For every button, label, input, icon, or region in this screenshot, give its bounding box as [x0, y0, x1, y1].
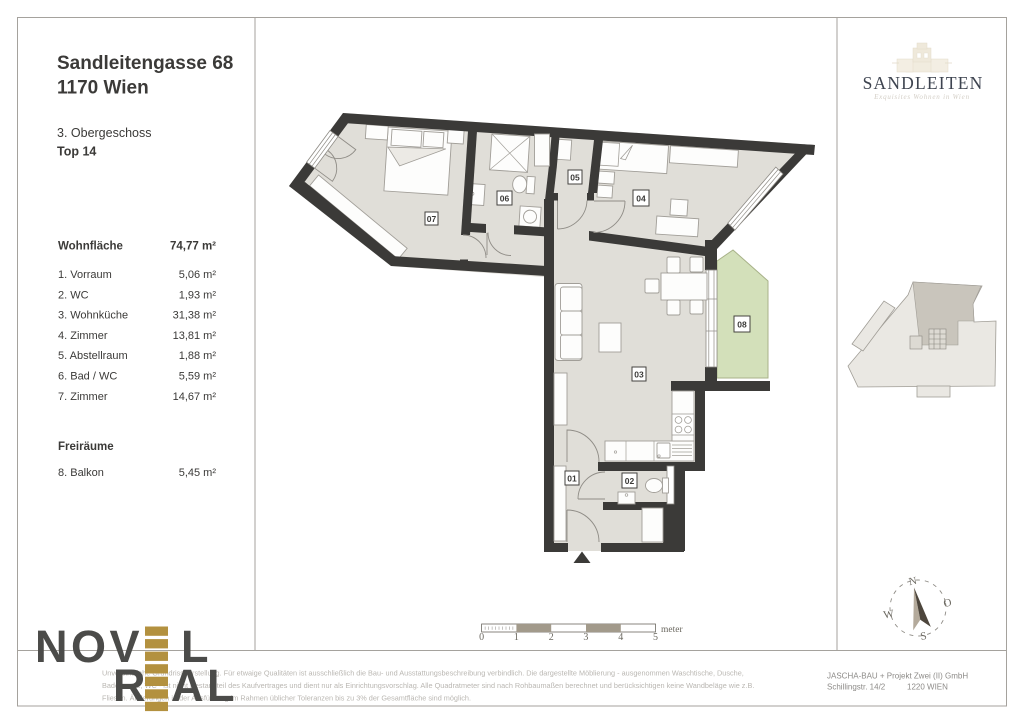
svg-text:08: 08: [737, 320, 747, 330]
svg-text:31,38 m²: 31,38 m²: [173, 310, 217, 322]
svg-text:Top 14: Top 14: [57, 145, 96, 159]
svg-text:2: 2: [549, 632, 554, 643]
svg-text:Sandleitengasse 68: Sandleitengasse 68: [57, 53, 233, 74]
svg-text:1,88 m²: 1,88 m²: [179, 350, 217, 362]
svg-text:meter: meter: [661, 625, 683, 635]
svg-text:Freiräume: Freiräume: [58, 441, 114, 453]
svg-text:4: 4: [618, 632, 623, 643]
svg-text:4. Zimmer: 4. Zimmer: [58, 330, 108, 342]
svg-text:07: 07: [427, 214, 437, 224]
svg-text:R: R: [113, 660, 149, 711]
svg-text:74,77 m²: 74,77 m²: [170, 241, 216, 253]
svg-text:5,59 m²: 5,59 m²: [179, 371, 217, 383]
svg-text:02: 02: [625, 476, 635, 486]
svg-text:7. Zimmer: 7. Zimmer: [58, 391, 108, 403]
svg-text:05: 05: [570, 173, 580, 183]
svg-text:8. Balkon: 8. Balkon: [58, 467, 104, 479]
svg-text:SANDLEITEN: SANDLEITEN: [863, 73, 984, 93]
svg-text:01: 01: [567, 474, 577, 484]
svg-text:03: 03: [634, 370, 644, 380]
svg-text:1: 1: [514, 632, 519, 643]
svg-text:04: 04: [636, 194, 646, 204]
svg-text:3: 3: [583, 632, 588, 643]
svg-text:5. Abstellraum: 5. Abstellraum: [58, 350, 128, 362]
svg-text:JASCHA-BAU + Projekt Zwei (II): JASCHA-BAU + Projekt Zwei (II) GmbH: [827, 672, 968, 681]
svg-text:2. WC: 2. WC: [58, 289, 89, 301]
svg-text:6. Bad / WC: 6. Bad / WC: [58, 371, 117, 383]
svg-text:3. Obergeschoss: 3. Obergeschoss: [57, 126, 152, 140]
svg-text:1,93 m²: 1,93 m²: [179, 289, 217, 301]
svg-text:Schillingstr. 14/2: Schillingstr. 14/2: [827, 683, 886, 692]
svg-text:5,45 m²: 5,45 m²: [179, 467, 217, 479]
svg-text:06: 06: [500, 194, 510, 204]
svg-text:3. Wohnküche: 3. Wohnküche: [58, 310, 128, 322]
svg-text:5: 5: [653, 632, 658, 643]
svg-text:14,67 m²: 14,67 m²: [173, 391, 217, 403]
svg-text:1170 Wien: 1170 Wien: [57, 78, 149, 99]
svg-text:1. Vorraum: 1. Vorraum: [58, 269, 112, 281]
svg-text:1220 WIEN: 1220 WIEN: [907, 683, 948, 692]
svg-text:0: 0: [479, 632, 484, 643]
svg-text:AL: AL: [171, 660, 238, 711]
svg-text:13,81 m²: 13,81 m²: [173, 330, 217, 342]
svg-text:Wohnfläche: Wohnfläche: [58, 241, 123, 253]
svg-text:Exquisites Wohnen in Wien: Exquisites Wohnen in Wien: [873, 93, 970, 101]
svg-text:5,06 m²: 5,06 m²: [179, 269, 217, 281]
